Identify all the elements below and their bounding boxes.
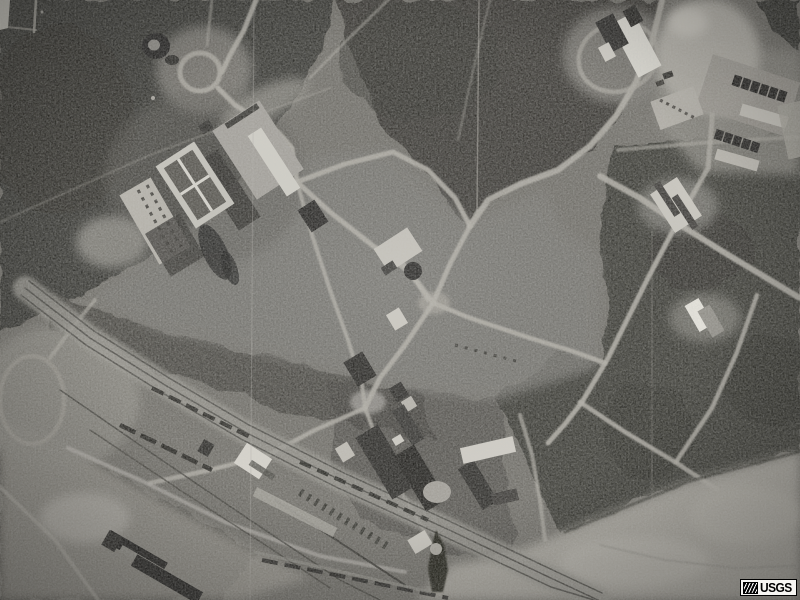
usgs-watermark: USGS xyxy=(740,579,797,596)
aerial-photo[interactable]: USGS xyxy=(0,0,800,600)
scene-svg xyxy=(0,0,800,600)
usgs-logo-icon xyxy=(743,582,758,594)
vignette xyxy=(0,0,800,600)
usgs-logo-text: USGS xyxy=(760,581,792,594)
